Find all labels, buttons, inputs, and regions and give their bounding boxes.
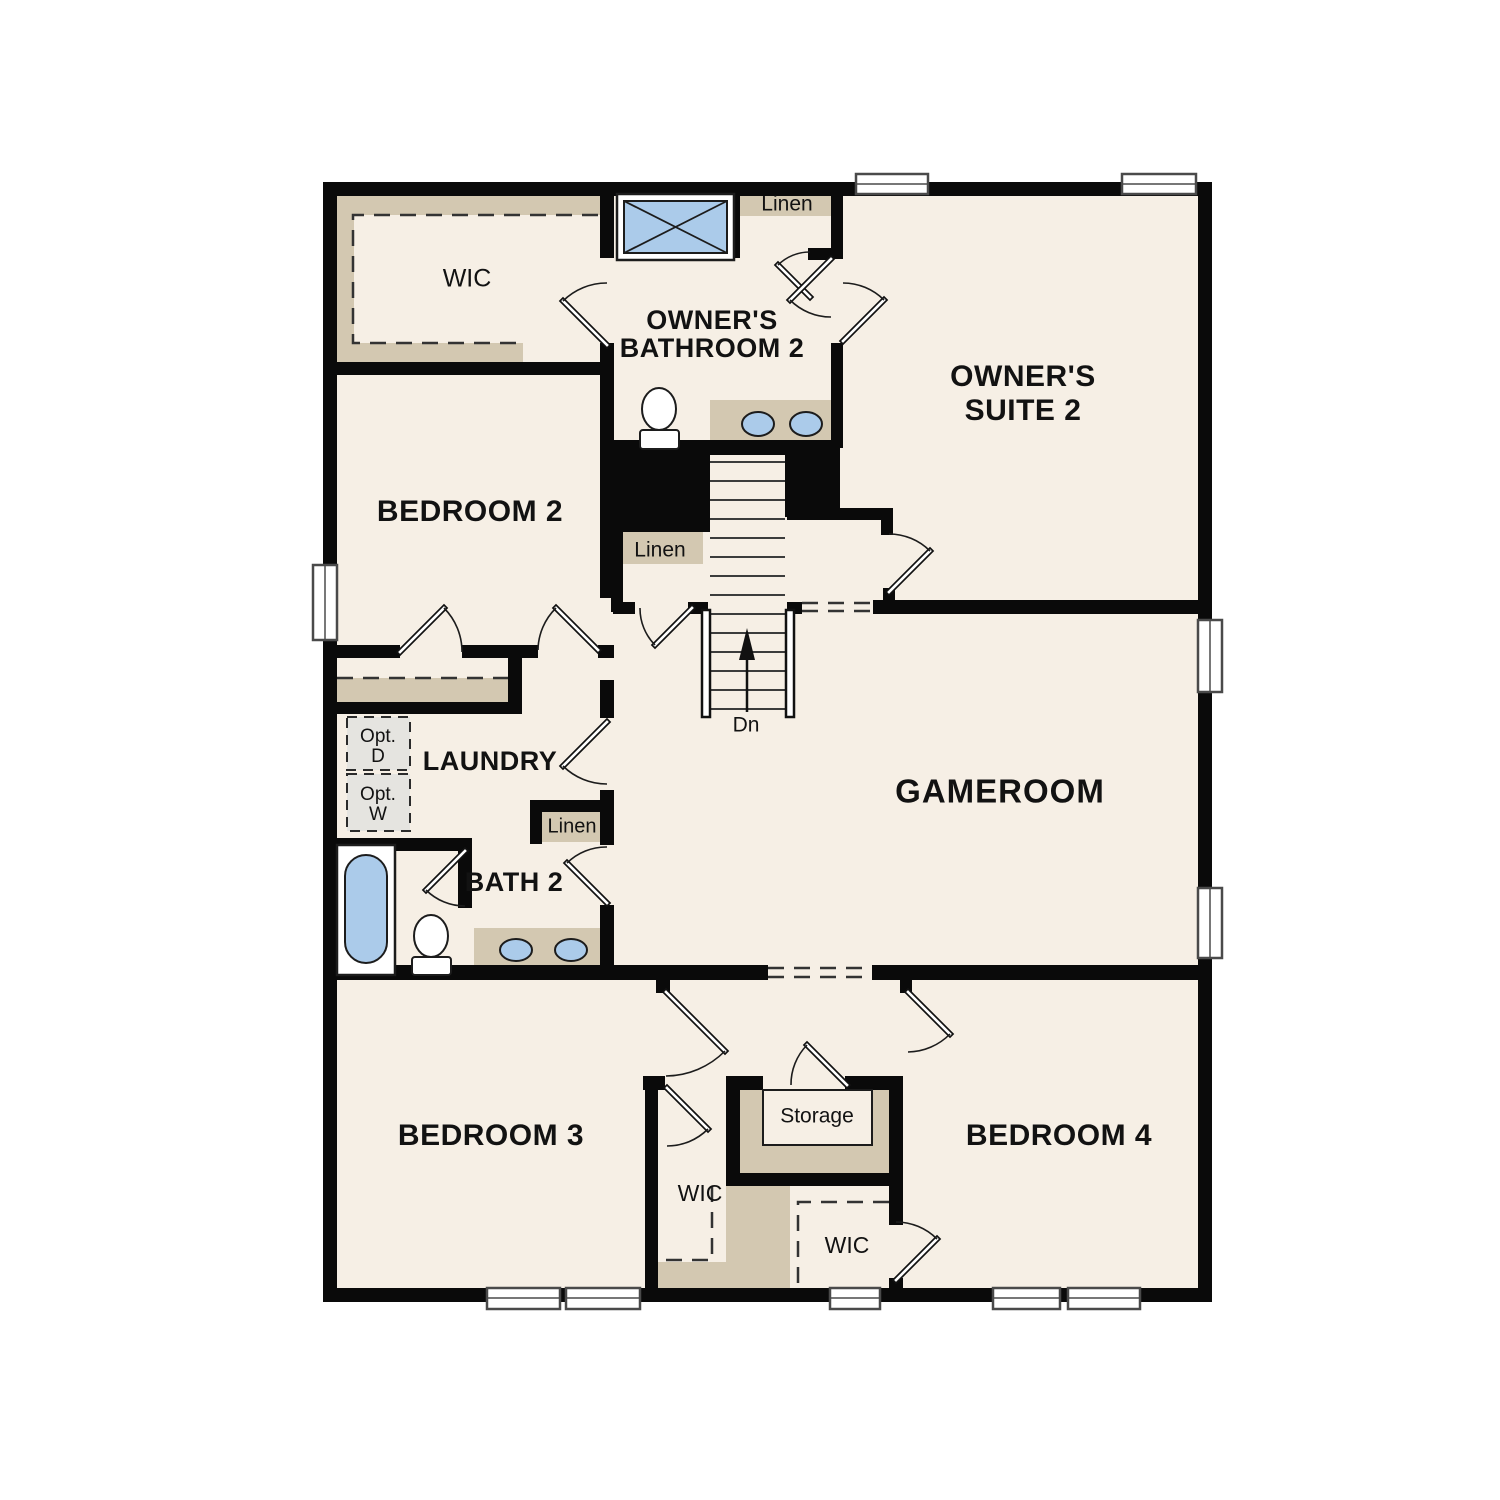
room-label-bedroom4: BEDROOM 4 [966,1119,1152,1152]
outer-wall-right [1198,182,1212,1302]
window [487,1288,560,1309]
window [1122,174,1196,194]
window [1198,888,1222,958]
label-linen-stairs: Linen [634,539,685,562]
room-label-owners-bathroom-line1: OWNER'S [646,305,777,335]
floor-plan: WIC OWNER'S BATHROOM 2 Linen OWNER'S SUI… [0,0,1500,1500]
window [1068,1288,1140,1309]
bedroom2-closet-shelf [337,678,508,702]
room-label-wic-top: WIC [443,265,492,293]
window [566,1288,640,1309]
shower-icon [617,194,734,260]
stair-rail-right [786,610,794,717]
label-opt-d-line1: Opt. [360,726,396,747]
room-label-gameroom: GAMEROOM [895,773,1105,810]
room-label-owners-suite-line2: SUITE 2 [965,394,1082,427]
bathtub-icon [337,845,395,975]
sink-icon [742,412,774,436]
window [856,174,928,194]
label-opt-w-line2: W [369,804,387,825]
outer-wall-left [323,182,337,1302]
stair-rail-left [702,610,710,717]
sink-icon [500,939,532,961]
label-linen-top: Linen [761,193,812,216]
window [313,565,337,640]
room-label-laundry: LAUNDRY [423,746,558,776]
room-label-bedroom2: BEDROOM 2 [377,495,563,528]
window [1198,620,1222,692]
sink-icon [790,412,822,436]
label-wic-bedroom4: WIC [825,1232,870,1258]
room-label-bath2: BATH 2 [465,867,564,897]
label-linen-bath: Linen [548,815,597,837]
toilet-icon [640,388,679,449]
room-label-bedroom3: BEDROOM 3 [398,1119,584,1152]
toilet-icon [412,915,451,975]
floor-plan-page: WIC OWNER'S BATHROOM 2 Linen OWNER'S SUI… [0,0,1500,1500]
window [993,1288,1060,1309]
room-label-owners-bathroom-line2: BATHROOM 2 [620,333,805,363]
label-opt-w-line1: Opt. [360,784,396,805]
window [830,1288,880,1309]
room-label-owners-suite-line1: OWNER'S [950,360,1096,393]
label-wic-bedroom3: WIC [678,1180,723,1206]
label-stairs-down: Dn [733,714,760,737]
sink-icon [555,939,587,961]
label-opt-d-line2: D [371,746,385,767]
label-storage: Storage [780,1105,854,1128]
